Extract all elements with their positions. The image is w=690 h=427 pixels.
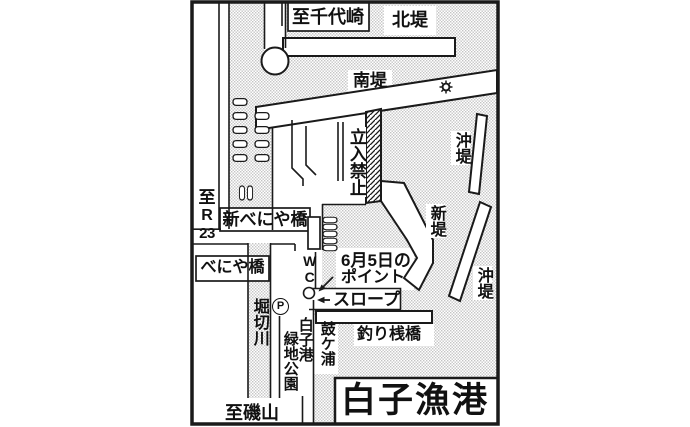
route23-char-r: R — [201, 208, 213, 225]
port-map: 至千代崎 北堤 南堤 沖堤 沖堤 立入禁止 新堤 至 R 23 新べにや橋 べに… — [0, 0, 690, 427]
label-new-breakwater: 新堤 — [426, 204, 445, 238]
parking-icon: P — [272, 298, 289, 315]
label-horikiri-river: 堀切川 — [250, 298, 267, 346]
wc-building — [308, 217, 320, 249]
river-upper — [248, 243, 270, 257]
label-no-entry: 立入禁止 — [346, 127, 366, 197]
map-drawing — [0, 0, 690, 427]
harbor-light — [440, 81, 453, 94]
label-park-ryokuchi: 緑地公園 — [282, 331, 298, 391]
point-circle-icon — [304, 288, 315, 299]
label-north-breakwater: 北堤 — [387, 9, 433, 32]
label-beniya-bridge: べにや橋 — [197, 258, 268, 279]
road-bulb — [262, 48, 289, 75]
label-wc: WC — [302, 253, 317, 285]
label-south-breakwater: 南堤 — [350, 71, 390, 91]
label-slope: スロープ — [333, 291, 400, 309]
route23-char-23: 23 — [199, 226, 215, 242]
route23-char-to: 至 — [199, 189, 216, 207]
label-route-23: 至 R 23 — [194, 189, 220, 241]
label-to-isoyama: 至磯山 — [225, 404, 279, 423]
label-point-line2: ポイント — [341, 270, 405, 287]
page-title: 白子漁港 — [341, 383, 489, 420]
label-to-chiyozaki: 至千代崎 — [292, 8, 366, 27]
label-offshore-upper: 沖堤 — [451, 131, 470, 165]
label-point-line1: 6月5日の — [341, 252, 411, 270]
label-fishing-pier: 釣り桟橋 — [357, 327, 421, 344]
label-offshore-lower: 沖堤 — [473, 266, 492, 300]
label-shin-beniya-bridge: 新べにや橋 — [221, 210, 309, 229]
label-park-shirakoko: 白子港 — [297, 317, 313, 362]
no-entry-hatched-bar — [366, 109, 381, 203]
north-breakwater-bar — [283, 38, 455, 56]
label-tsuzumigaura: 鼓ケ浦 — [319, 321, 335, 366]
